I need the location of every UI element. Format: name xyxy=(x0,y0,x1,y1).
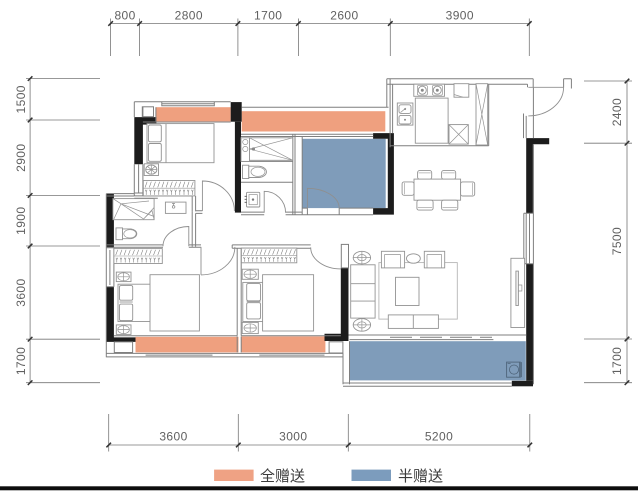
svg-text:800: 800 xyxy=(114,9,135,23)
svg-text:1900: 1900 xyxy=(14,207,28,235)
svg-text:1700: 1700 xyxy=(14,347,28,375)
svg-text:3600: 3600 xyxy=(159,430,187,444)
svg-text:1700: 1700 xyxy=(610,347,624,375)
svg-text:2900: 2900 xyxy=(14,144,28,172)
svg-text:3600: 3600 xyxy=(14,278,28,306)
svg-text:2600: 2600 xyxy=(330,9,358,23)
svg-text:3000: 3000 xyxy=(279,430,307,444)
svg-text:半赠送: 半赠送 xyxy=(398,468,443,485)
svg-text:3900: 3900 xyxy=(446,9,474,23)
svg-text:1500: 1500 xyxy=(14,85,28,113)
svg-text:7500: 7500 xyxy=(610,227,624,255)
svg-text:5200: 5200 xyxy=(425,430,453,444)
svg-text:2800: 2800 xyxy=(175,9,203,23)
svg-text:全赠送: 全赠送 xyxy=(260,467,305,485)
svg-text:1700: 1700 xyxy=(254,9,282,23)
svg-text:2400: 2400 xyxy=(610,98,624,126)
